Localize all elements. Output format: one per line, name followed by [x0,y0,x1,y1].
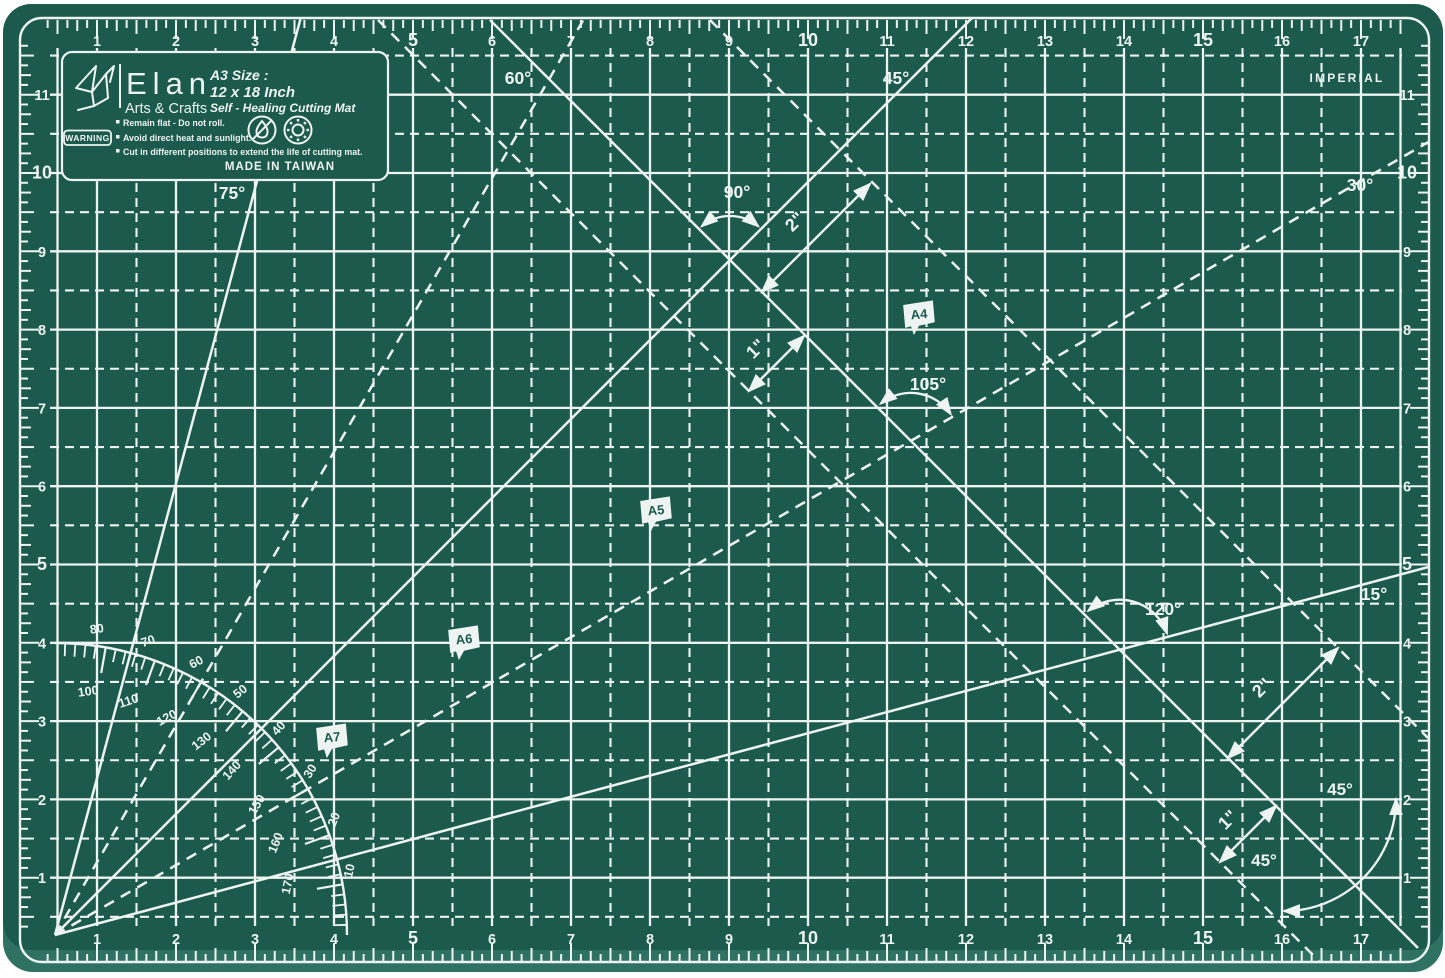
ruler-number-bottom: 15 [1193,928,1213,948]
ruler-number-bottom: 5 [408,928,418,948]
unit-system-label: IMPERIAL [1310,71,1385,85]
ruler-number-top: 10 [798,30,818,50]
ruler-number-bottom: 8 [646,932,654,948]
ruler-number-bottom: 17 [1353,932,1369,948]
ruler-number-right: 7 [1403,401,1411,417]
protractor-degree-outer: 10 [341,862,358,879]
ruler-number-left: 7 [38,401,46,417]
made-in-label: MADE IN TAIWAN [225,161,335,173]
ruler-number-top: 2 [172,34,180,50]
flag-label: A4 [910,306,929,322]
angle-arc-label: 105° [910,374,946,394]
size-label: A3 Size : [209,67,268,83]
ruler-number-top: 16 [1274,34,1290,50]
ruler-number-top: 5 [408,30,418,50]
ruler-number-top: 6 [488,34,496,50]
warning-line: Avoid direct heat and sunlight. [123,133,251,143]
ruler-number-left: 3 [38,715,46,731]
protractor-tick [333,915,346,916]
ruler-number-right: 2 [1403,793,1411,809]
ruler-number-bottom: 2 [172,932,180,948]
flag-label: A7 [323,729,341,745]
ruler-number-left: 6 [38,480,46,496]
ruler-number-left: 5 [37,554,47,574]
ruler-number-bottom: 10 [798,928,818,948]
ruler-number-top: 11 [879,34,894,50]
warning-line: Cut in different positions to extend the… [123,147,362,157]
ruler-number-left: 1 [38,871,46,887]
ruler-number-top: 1 [93,34,101,50]
warning-badge-label: WARNING [65,133,110,143]
ruler-number-top: 3 [251,34,259,50]
ruler-number-bottom: 7 [567,932,575,948]
ruler-number-bottom: 16 [1274,932,1290,948]
ruler-number-right: 4 [1403,636,1411,652]
angle-label-75: 75° [219,183,245,203]
flag-label: A5 [647,502,665,518]
flag-label: A6 [455,631,473,647]
ruler-number-bottom: 1 [93,932,101,948]
corner-angle-label: 45° [1327,780,1353,799]
ruler-number-right: 8 [1403,323,1411,339]
ruler-number-bottom: 9 [725,932,733,948]
protractor-degree-outer: 80 [89,621,105,637]
ruler-number-right: 1 [1403,871,1411,887]
angle-arc-label: 120° [1145,599,1181,619]
angle-label-30: 30° [1347,175,1373,195]
protractor-tick [74,644,75,657]
tagline: Self - Healing Cutting Mat [210,101,356,115]
angle-label-60: 60° [505,68,531,88]
ruler-number-top: 15 [1193,30,1213,50]
ruler-number-bottom: 3 [251,932,259,948]
size-value: 12 x 18 Inch [210,84,295,101]
brand-name: Elan [126,66,212,101]
angle-label-15: 15° [1361,584,1387,604]
ruler-number-top: 12 [958,34,974,50]
ruler-number-right: 3 [1403,715,1411,731]
warning-line: Remain flat - Do not roll. [123,118,225,128]
brand-plate: Elan Arts & Crafts A3 Size : 12 x 18 Inc… [62,52,388,180]
corner-angle-label: 45° [1251,851,1277,870]
angle-arc-label: 90° [724,182,750,202]
ruler-number-bottom: 12 [958,932,974,948]
ruler-number-left: 11 [34,88,49,104]
ruler-number-top: 17 [1353,34,1369,50]
ruler-number-bottom: 13 [1037,932,1053,948]
ruler-number-top: 8 [646,34,654,50]
ruler-number-left: 9 [38,245,46,261]
ruler-number-right: 6 [1403,480,1411,496]
ruler-number-bottom: 11 [879,932,894,948]
angle-label-45: 45° [883,68,909,88]
ruler-number-left: 10 [32,163,52,183]
ruler-number-top: 13 [1037,34,1053,50]
brand-subtitle: Arts & Crafts [125,101,207,117]
ruler-number-right: 9 [1403,245,1411,261]
ruler-number-top: 4 [330,34,338,50]
protractor-degree-inner: 100 [77,683,100,700]
ruler-number-bottom: 6 [488,932,496,948]
cutting-mat: 1234567891011121314151617123456789101112… [0,0,1445,978]
ruler-number-bottom: 14 [1116,932,1132,948]
ruler-number-bottom: 4 [330,932,338,948]
ruler-number-left: 4 [38,636,46,652]
ruler-number-left: 2 [38,793,46,809]
ruler-number-left: 8 [38,323,46,339]
mat-canvas: 1234567891011121314151617123456789101112… [0,0,1445,978]
ruler-number-top: 14 [1116,34,1132,50]
